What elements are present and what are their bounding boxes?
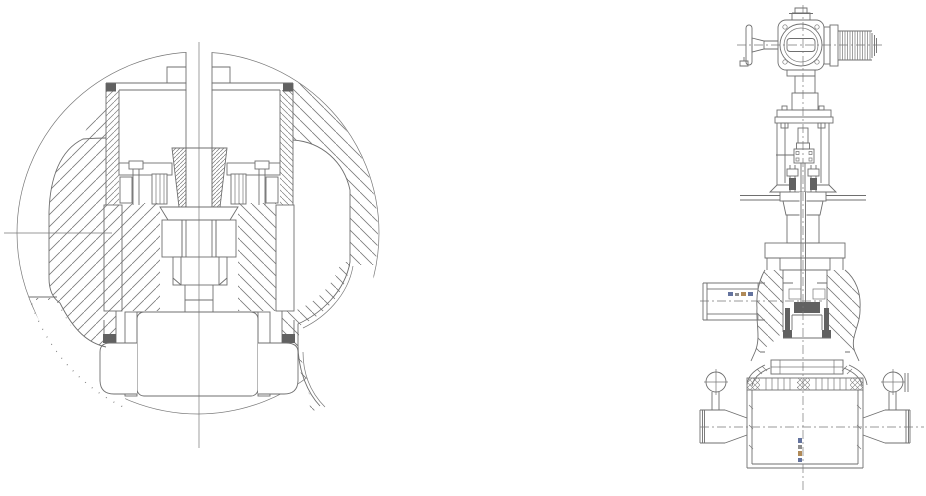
left-nozzle [700,369,747,443]
plug-head [794,302,820,313]
drawing-sheet [0,0,926,496]
actuator-column [775,70,833,128]
gland-bushing [172,148,227,207]
handwheel [740,25,778,66]
actuator-gearbox [778,8,824,70]
gland-stud-right [255,161,269,205]
inlet-port-micro-label [728,292,753,296]
stem-nut [173,257,227,312]
right-nozzle [863,369,910,443]
seal-ring-right [282,334,295,343]
bonnet-hatch-left [122,203,160,311]
seat-ring-left [789,289,801,299]
cad-drawing [0,0,926,496]
detail-view [4,42,379,448]
gearbox-top-cap [789,8,813,20]
vessel [747,378,863,468]
bonnet-hatch-right [238,203,276,311]
corner-seal-left [106,84,116,92]
centerlines-elevation [700,5,924,490]
elevation-view [700,5,924,490]
gland-stud-left [129,161,143,205]
seat-ring-right [813,289,825,299]
corner-seal-right [283,84,293,92]
strainer-ring [751,352,859,374]
bottom-plug [125,312,270,396]
vessel-micro-label [798,438,802,462]
seal-ring-left [103,334,116,343]
motor-fins [824,25,877,66]
valve-body [755,243,860,352]
